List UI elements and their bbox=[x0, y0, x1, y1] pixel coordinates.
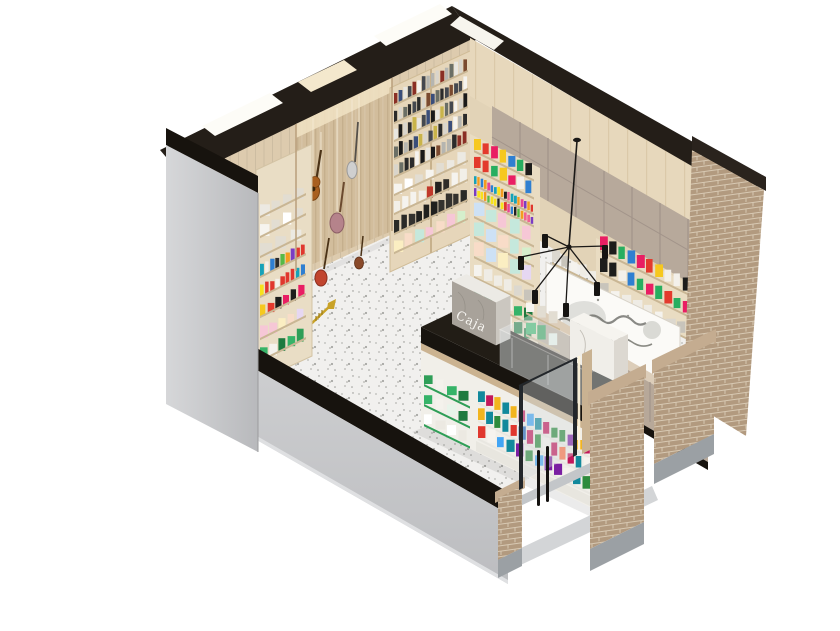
cutaway-wall-west bbox=[166, 128, 258, 452]
isometric-scene: Caja bbox=[0, 0, 840, 631]
bookshelf bbox=[390, 50, 472, 272]
entry-pillar bbox=[588, 364, 646, 571]
door-handle bbox=[537, 450, 540, 506]
corner-pillar bbox=[495, 477, 525, 578]
left-shelf-unit bbox=[256, 144, 312, 382]
door-handle bbox=[546, 446, 549, 502]
store-render: Caja bbox=[0, 0, 840, 631]
